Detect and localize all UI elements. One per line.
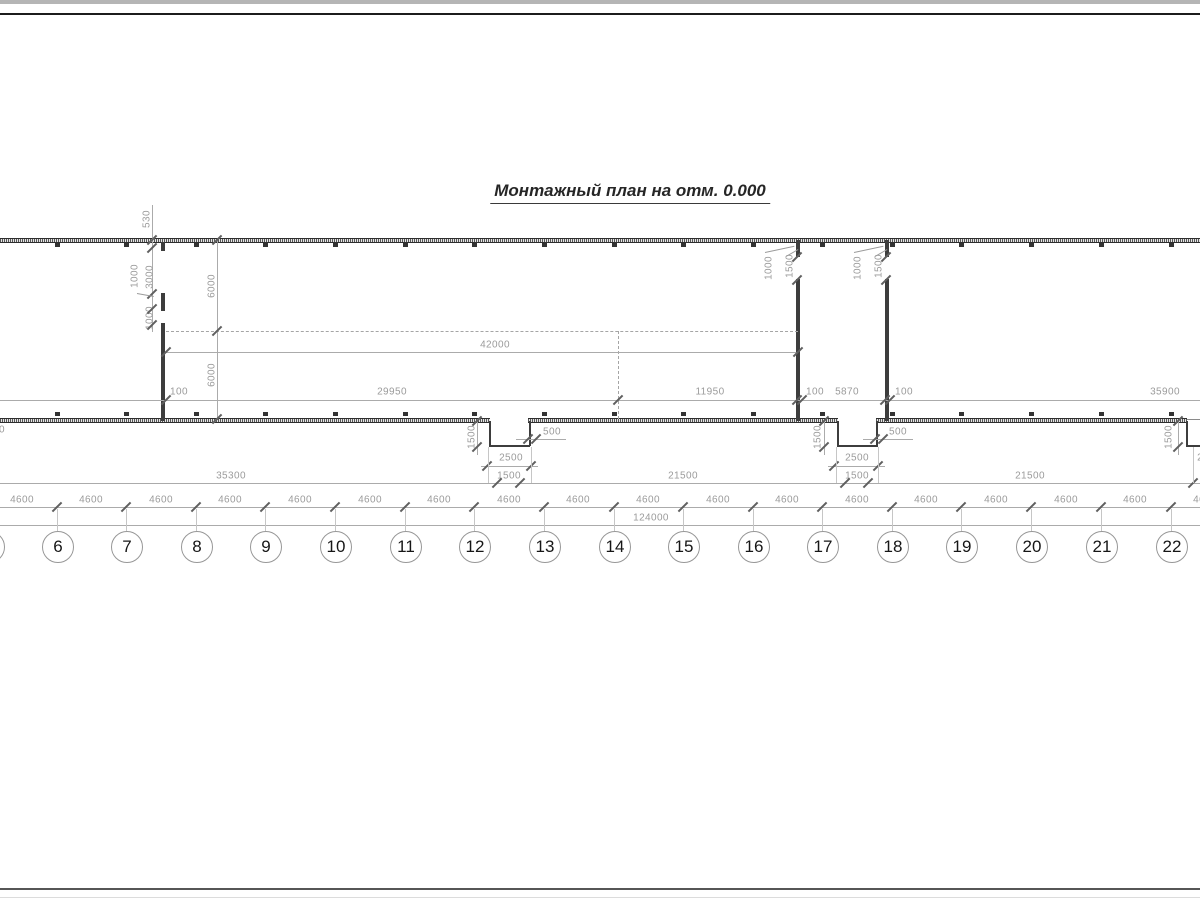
column-mark	[1169, 412, 1174, 416]
column-mark	[1169, 243, 1174, 247]
dim-label: 3000	[145, 265, 156, 289]
dim-label: 1500	[1164, 425, 1175, 449]
dim-label: 35900	[1150, 387, 1180, 398]
column-mark	[1029, 412, 1034, 416]
left-wall-segment	[161, 323, 165, 421]
axis-circle-14: 14	[599, 531, 631, 563]
column-mark	[263, 412, 268, 416]
axis-circle-22: 22	[1156, 531, 1188, 563]
axis-circle-12: 12	[459, 531, 491, 563]
dashed-reference-line	[166, 331, 798, 332]
column-mark	[820, 243, 825, 247]
dim-label: 1000	[130, 264, 141, 288]
axis-circle-21: 21	[1086, 531, 1118, 563]
bottom-wall-segment	[0, 418, 490, 423]
column-mark	[681, 412, 686, 416]
dim-line-1500-notch	[824, 420, 825, 455]
axis-extension-line	[892, 509, 893, 531]
axis-circle-5: 5	[0, 531, 5, 563]
dim-label: 1000	[764, 256, 775, 280]
dim-label: 100	[806, 387, 824, 398]
dim-label: 100	[0, 425, 5, 436]
wall-edge-line	[1187, 419, 1200, 420]
column-mark	[124, 243, 129, 247]
dim-label: 6000	[207, 274, 218, 298]
column-mark	[124, 412, 129, 416]
axis-circle-8: 8	[181, 531, 213, 563]
dim-line-124000	[0, 525, 1200, 526]
column-mark	[612, 243, 617, 247]
column-mark	[194, 243, 199, 247]
axis-extension-line	[544, 509, 545, 531]
dim-label: 4600	[218, 495, 242, 506]
bottom-wall-segment	[528, 418, 838, 423]
dim-label: 2500	[499, 453, 523, 464]
axis-circle-11: 11	[390, 531, 422, 563]
column-mark	[472, 243, 477, 247]
extension-line	[878, 447, 879, 483]
axis-circle-9: 9	[250, 531, 282, 563]
drawing-canvas: Монтажный план на отм. 0.000 56789101112…	[0, 0, 1200, 900]
axis-extension-line	[196, 509, 197, 531]
dim-label: 4600	[984, 495, 1008, 506]
axis-extension-line	[405, 509, 406, 531]
column-mark	[890, 243, 895, 247]
axis-extension-line	[265, 509, 266, 531]
leader-line	[765, 246, 795, 253]
column-mark	[681, 243, 686, 247]
dim-label: 21500	[668, 471, 698, 482]
column-mark	[1099, 412, 1104, 416]
axis-circle-7: 7	[111, 531, 143, 563]
axis-circle-20: 20	[1016, 531, 1048, 563]
axis-circle-15: 15	[668, 531, 700, 563]
dim-label: 4600	[79, 495, 103, 506]
notch-side	[489, 421, 491, 446]
column-mark	[820, 412, 825, 416]
dim-label: 500	[543, 427, 561, 438]
axis-extension-line	[126, 509, 127, 531]
column-mark	[333, 412, 338, 416]
column-mark	[959, 412, 964, 416]
extension-line	[836, 447, 837, 483]
dim-label: 1000	[853, 256, 864, 280]
dim-label: 35300	[216, 471, 246, 482]
column-mark	[333, 243, 338, 247]
column-mark	[403, 243, 408, 247]
column-mark	[542, 412, 547, 416]
dashed-reference-line	[618, 331, 619, 419]
dim-label: 4600	[1123, 495, 1147, 506]
dim-label: 4600	[358, 495, 382, 506]
axis-extension-line	[614, 509, 615, 531]
extension-line	[531, 447, 532, 483]
dim-label: 124000	[633, 513, 669, 524]
axis-extension-line	[1031, 509, 1032, 531]
dim-label: 11950	[695, 387, 724, 398]
notch-side	[837, 421, 839, 446]
column-mark	[959, 243, 964, 247]
bottom-gray-line	[0, 897, 1200, 898]
axis-extension-line	[683, 509, 684, 531]
notch-bottom	[837, 445, 878, 447]
dim-label: 4600	[566, 495, 590, 506]
dim-label: 100	[170, 387, 188, 398]
top-gray-strip	[0, 0, 1200, 4]
dim-label: 4600	[10, 495, 34, 506]
axis-extension-line	[822, 509, 823, 531]
left-wall-segment	[161, 293, 165, 311]
axis-extension-line	[474, 509, 475, 531]
dim-line-42000	[166, 352, 798, 353]
column-mark	[263, 243, 268, 247]
dim-label: 6000	[207, 363, 218, 387]
dim-label: 4600	[636, 495, 660, 506]
bottom-wall-segment	[876, 418, 1187, 423]
axis-circle-6: 6	[42, 531, 74, 563]
top-wall	[0, 238, 1200, 243]
column-mark	[472, 412, 477, 416]
dim-line-4600-row	[0, 507, 1200, 508]
dim-line-500	[863, 439, 913, 440]
axis-extension-line	[57, 509, 58, 531]
extension-line	[488, 447, 489, 483]
dim-label: 4600	[845, 495, 869, 506]
column-mark	[751, 243, 756, 247]
column-mark	[403, 412, 408, 416]
dim-line-chain	[0, 483, 1200, 484]
dim-label: 500	[889, 427, 907, 438]
axis-extension-line	[961, 509, 962, 531]
dim-label: 1500	[813, 425, 824, 449]
column-mark	[194, 412, 199, 416]
axis-circle-16: 16	[738, 531, 770, 563]
column-mark	[890, 412, 895, 416]
axis-extension-line	[1101, 509, 1102, 531]
dim-line-row1	[0, 400, 1200, 401]
dim-line-500	[516, 439, 566, 440]
leader-line	[854, 246, 884, 253]
dim-label: 4600	[427, 495, 451, 506]
bottom-frame-line	[0, 888, 1200, 890]
left-wall-segment	[161, 242, 165, 251]
dim-label: 21500	[1015, 471, 1045, 482]
axis-circle-17: 17	[807, 531, 839, 563]
notch-side	[1186, 421, 1188, 446]
drawing-title: Монтажный план на отм. 0.000	[490, 181, 770, 204]
dim-label: 2500	[845, 453, 869, 464]
column-mark	[1099, 243, 1104, 247]
axis-extension-line	[753, 509, 754, 531]
extension-line	[1193, 447, 1194, 483]
column-mark	[751, 412, 756, 416]
column-mark	[55, 243, 60, 247]
column-mark	[55, 412, 60, 416]
dim-label: 4600	[149, 495, 173, 506]
dim-label: 4600	[1054, 495, 1078, 506]
axis-circle-18: 18	[877, 531, 909, 563]
axis-extension-line	[1171, 509, 1172, 531]
top-frame-line	[0, 13, 1200, 15]
dim-label: 4600	[914, 495, 938, 506]
axis-circle-19: 19	[946, 531, 978, 563]
dim-label: 4600	[497, 495, 521, 506]
dim-label: 29950	[377, 387, 407, 398]
notch-bottom	[489, 445, 530, 447]
dim-line-1500-notch	[1178, 420, 1179, 455]
column-mark	[542, 243, 547, 247]
column-mark	[612, 412, 617, 416]
dim-label: 42000	[480, 340, 510, 351]
dim-label: 100	[895, 387, 913, 398]
dim-label: 530	[142, 210, 153, 228]
axis-circle-13: 13	[529, 531, 561, 563]
dim-label: 4600	[775, 495, 799, 506]
dim-label: 4600	[706, 495, 730, 506]
column-mark	[1029, 243, 1034, 247]
dim-label: 5870	[835, 387, 859, 398]
dim-label: 4600	[288, 495, 312, 506]
axis-extension-line	[335, 509, 336, 531]
axis-circle-10: 10	[320, 531, 352, 563]
dim-label: 4600	[1193, 495, 1200, 506]
